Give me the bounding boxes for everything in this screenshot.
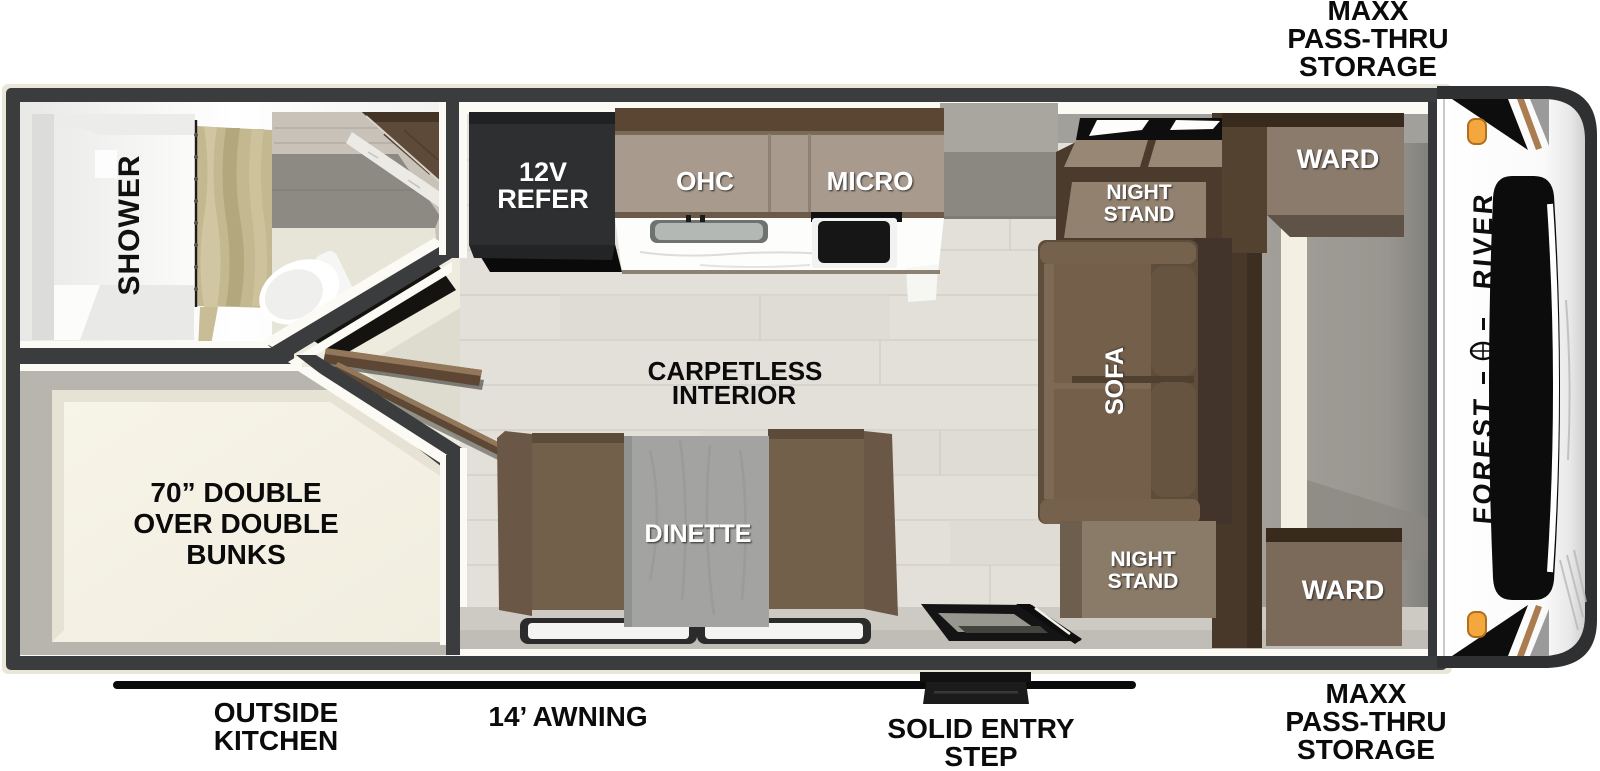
svg-text:WARD: WARD bbox=[1302, 575, 1385, 605]
svg-text:PASS-THRU: PASS-THRU bbox=[1285, 706, 1446, 737]
svg-text:STEP: STEP bbox=[944, 741, 1017, 771]
svg-text:14’ AWNING: 14’ AWNING bbox=[488, 701, 647, 732]
svg-text:MICRO: MICRO bbox=[827, 166, 914, 196]
svg-text:OUTSIDE: OUTSIDE bbox=[214, 697, 338, 728]
svg-text:STORAGE: STORAGE bbox=[1299, 51, 1437, 82]
svg-text:70” DOUBLE: 70” DOUBLE bbox=[150, 477, 321, 508]
svg-text:DINETTE: DINETTE bbox=[645, 520, 752, 548]
svg-text:NIGHT: NIGHT bbox=[1106, 181, 1172, 204]
svg-text:SOLID ENTRY: SOLID ENTRY bbox=[887, 713, 1075, 744]
svg-text:PASS-THRU: PASS-THRU bbox=[1287, 23, 1448, 54]
svg-text:WARD: WARD bbox=[1297, 144, 1380, 174]
svg-text:NIGHT: NIGHT bbox=[1110, 548, 1176, 571]
svg-text:STAND: STAND bbox=[1104, 203, 1175, 226]
svg-text:OVER DOUBLE: OVER DOUBLE bbox=[133, 508, 338, 539]
svg-text:MAXX: MAXX bbox=[1326, 678, 1407, 709]
svg-text:BUNKS: BUNKS bbox=[186, 539, 286, 570]
svg-text:OHC: OHC bbox=[676, 166, 734, 196]
svg-text:REFER: REFER bbox=[497, 184, 589, 214]
svg-text:SOFA: SOFA bbox=[1101, 347, 1129, 415]
svg-text:KITCHEN: KITCHEN bbox=[214, 725, 338, 756]
svg-text:FOREST: FOREST bbox=[1468, 395, 1498, 525]
svg-text:STAND: STAND bbox=[1108, 570, 1179, 593]
svg-text:STORAGE: STORAGE bbox=[1297, 734, 1435, 765]
svg-text:12V: 12V bbox=[519, 157, 567, 187]
svg-text:SHOWER: SHOWER bbox=[113, 155, 146, 296]
svg-text:RIVER: RIVER bbox=[1468, 190, 1498, 290]
svg-text:INTERIOR: INTERIOR bbox=[672, 380, 796, 410]
